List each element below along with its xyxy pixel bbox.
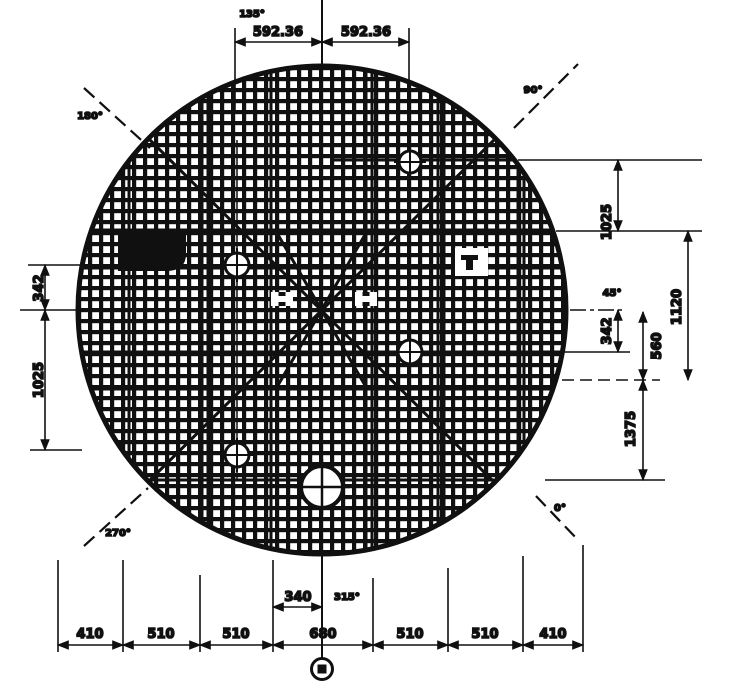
drawing-svg: 592.36 592.36 135° 342 1025 1025 — [0, 0, 743, 696]
angle-top-left-label: 180° — [77, 111, 103, 122]
dim-bottom-510b-label: 510 — [222, 627, 249, 642]
datum-symbol — [312, 659, 333, 680]
engineering-drawing-circular-plate: 592.36 592.36 135° 342 1025 1025 — [0, 0, 743, 696]
dim-right-1375-label: 1375 — [624, 411, 639, 447]
dim-bottom-510c-label: 510 — [396, 627, 423, 642]
dim-left — [20, 265, 85, 450]
h-cutout-right — [355, 292, 377, 306]
dim-right-560-label: 560 — [650, 332, 665, 359]
dim-bottom-410a-label: 410 — [76, 627, 103, 642]
dim-bottom-510a-label: 510 — [147, 627, 174, 642]
dim-left-342-label: 342 — [32, 274, 47, 301]
dim-right-342-label: 342 — [600, 317, 615, 344]
dim-bottom-510d-label: 510 — [471, 627, 498, 642]
dim-bottom-340-label: 340 — [284, 590, 311, 605]
h-cutout-left — [271, 292, 293, 306]
angle-top-right-label: 90° — [524, 85, 543, 96]
plate-disc — [70, 55, 578, 567]
dim-right-1120-label: 1120 — [670, 289, 685, 325]
dim-top-right-label: 592.36 — [341, 25, 391, 40]
dim-top-left-label: 592.36 — [253, 25, 303, 40]
angle-bottom-right-label: 0° — [554, 503, 566, 514]
leader-top-right — [514, 64, 578, 128]
solid-fill-patch — [118, 229, 186, 271]
angle-bottom-label: 315° — [334, 592, 360, 603]
dim-bottom-410b-label: 410 — [539, 627, 566, 642]
angle-bottom-left-label: 270° — [105, 528, 131, 539]
cutout-patch — [455, 248, 488, 276]
dim-right-1025-label: 1025 — [600, 204, 615, 240]
angle-right-label: 45° — [603, 288, 622, 299]
angle-top-label: 135° — [239, 9, 265, 20]
dim-left-1025-label: 1025 — [32, 362, 47, 398]
dim-bottom-680-label: 680 — [309, 627, 336, 642]
